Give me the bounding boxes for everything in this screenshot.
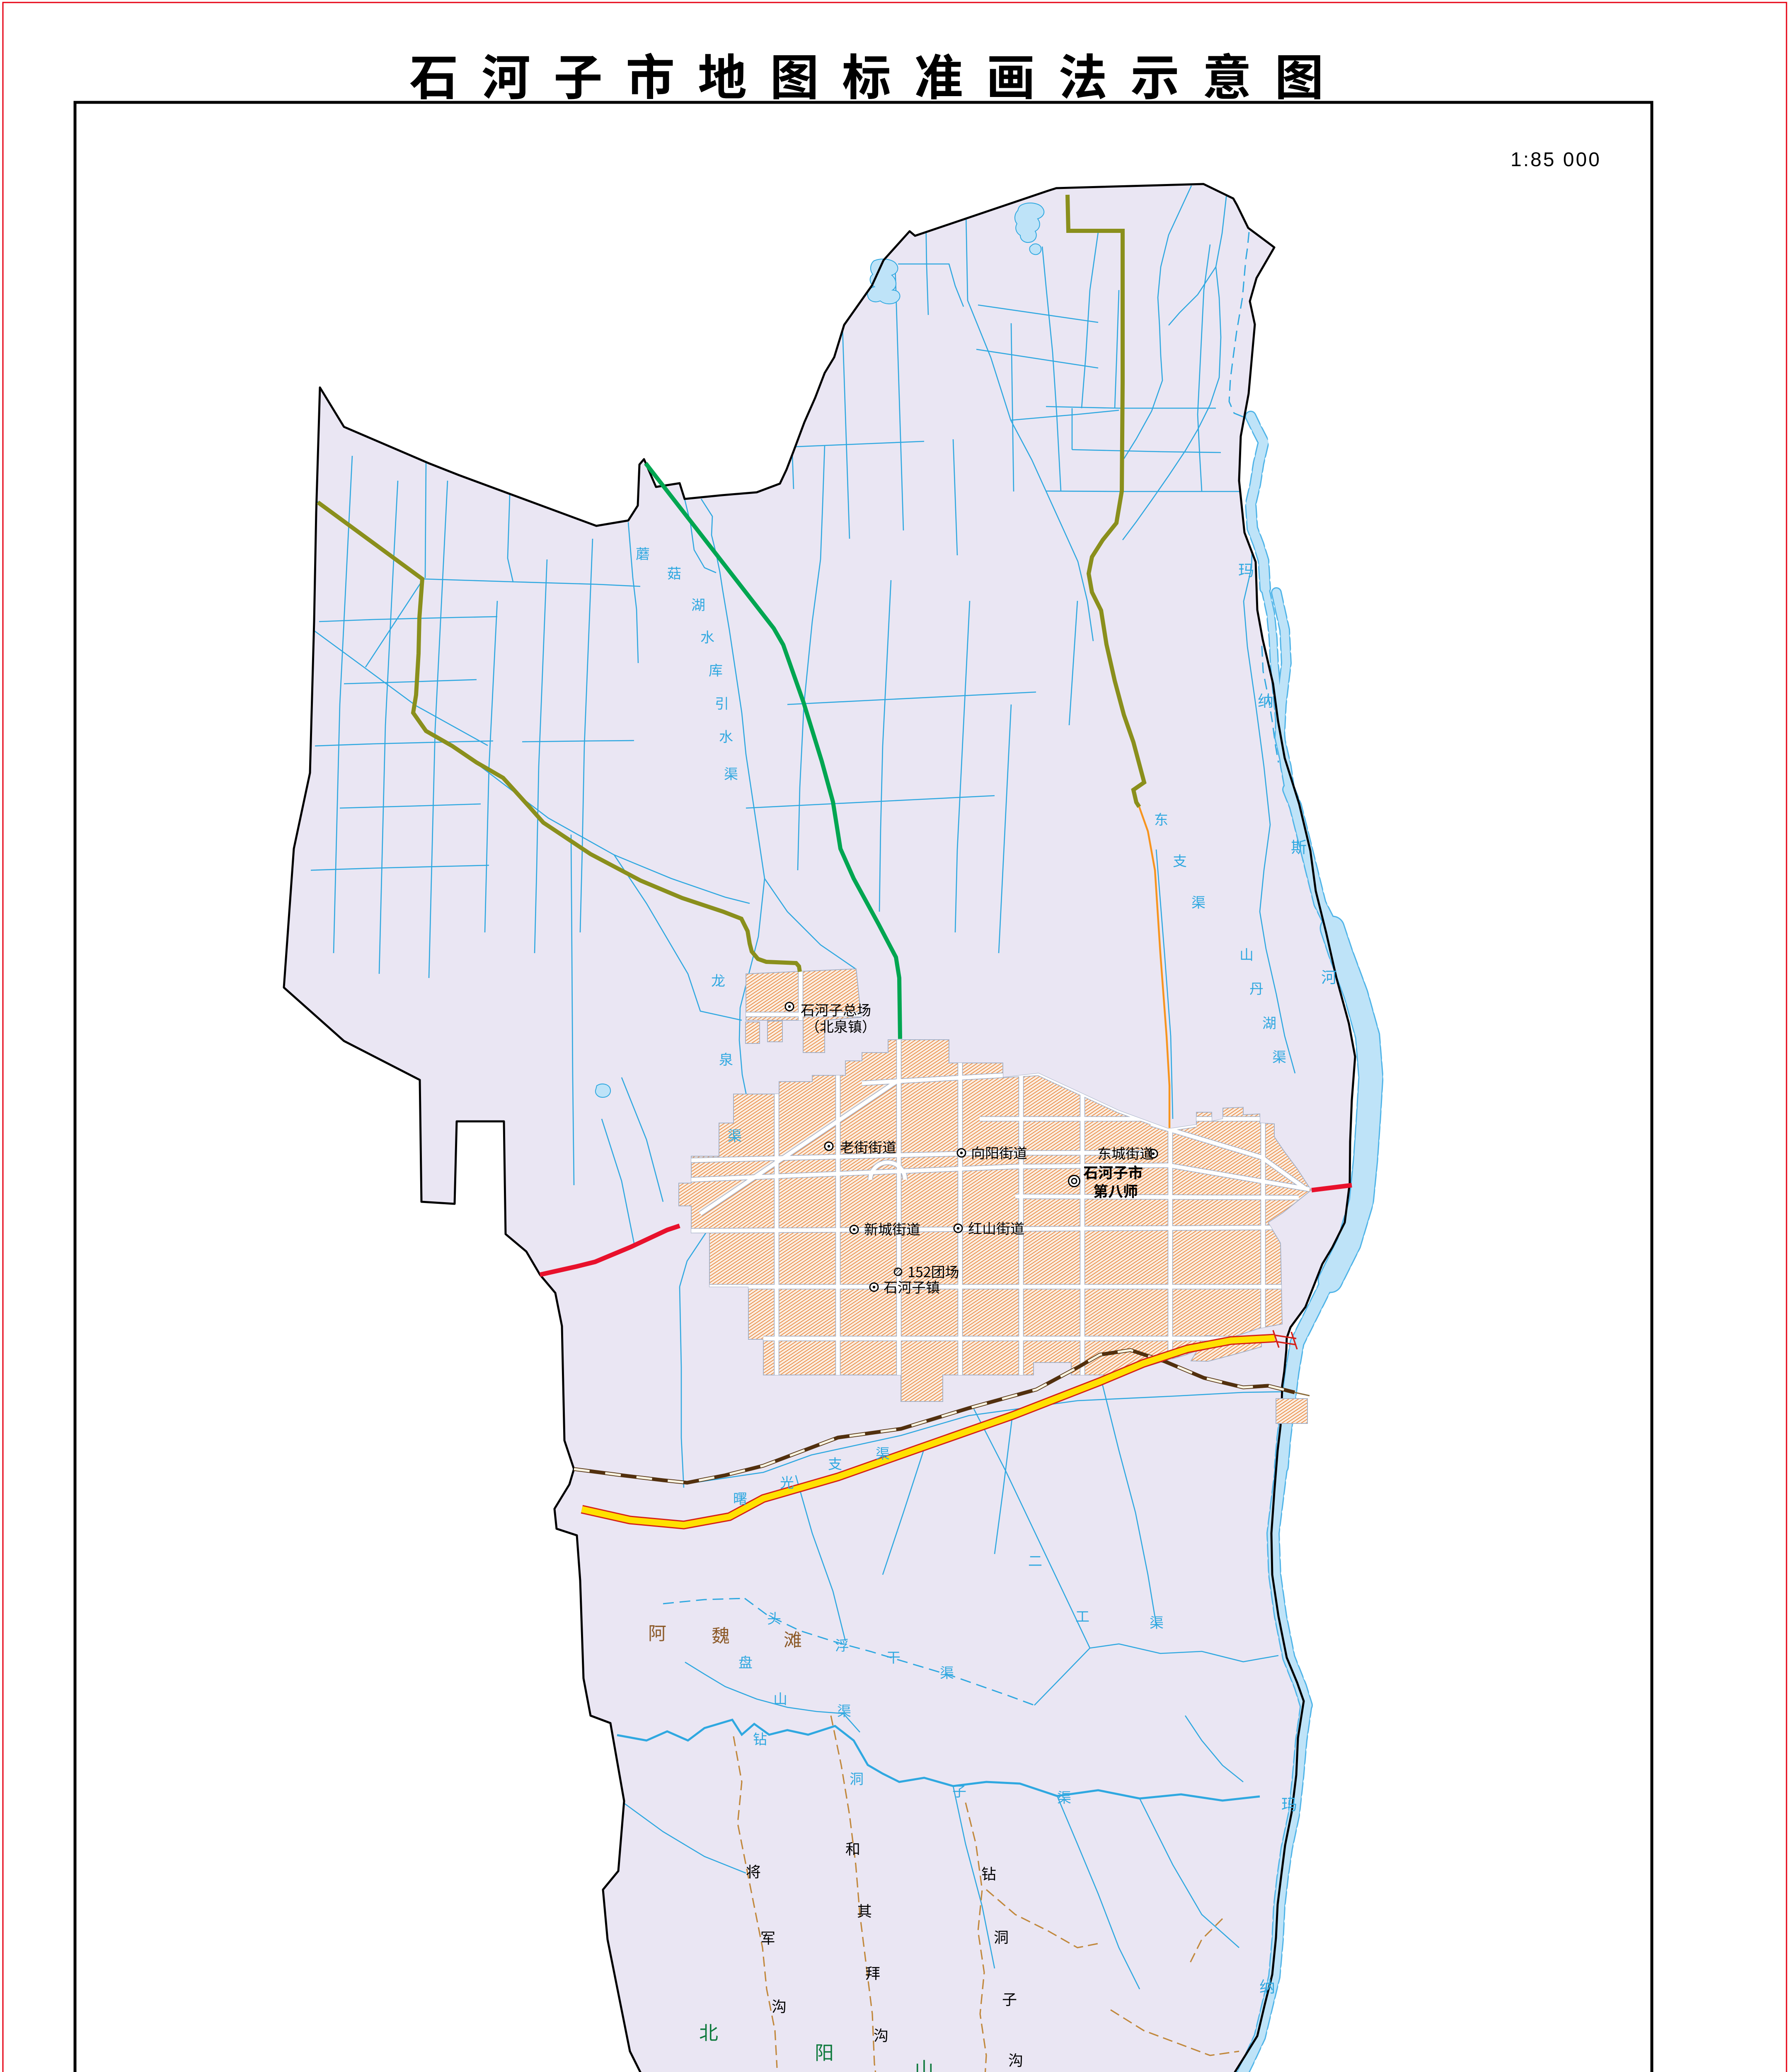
svg-text:1:85 000: 1:85 000 (1511, 149, 1601, 171)
